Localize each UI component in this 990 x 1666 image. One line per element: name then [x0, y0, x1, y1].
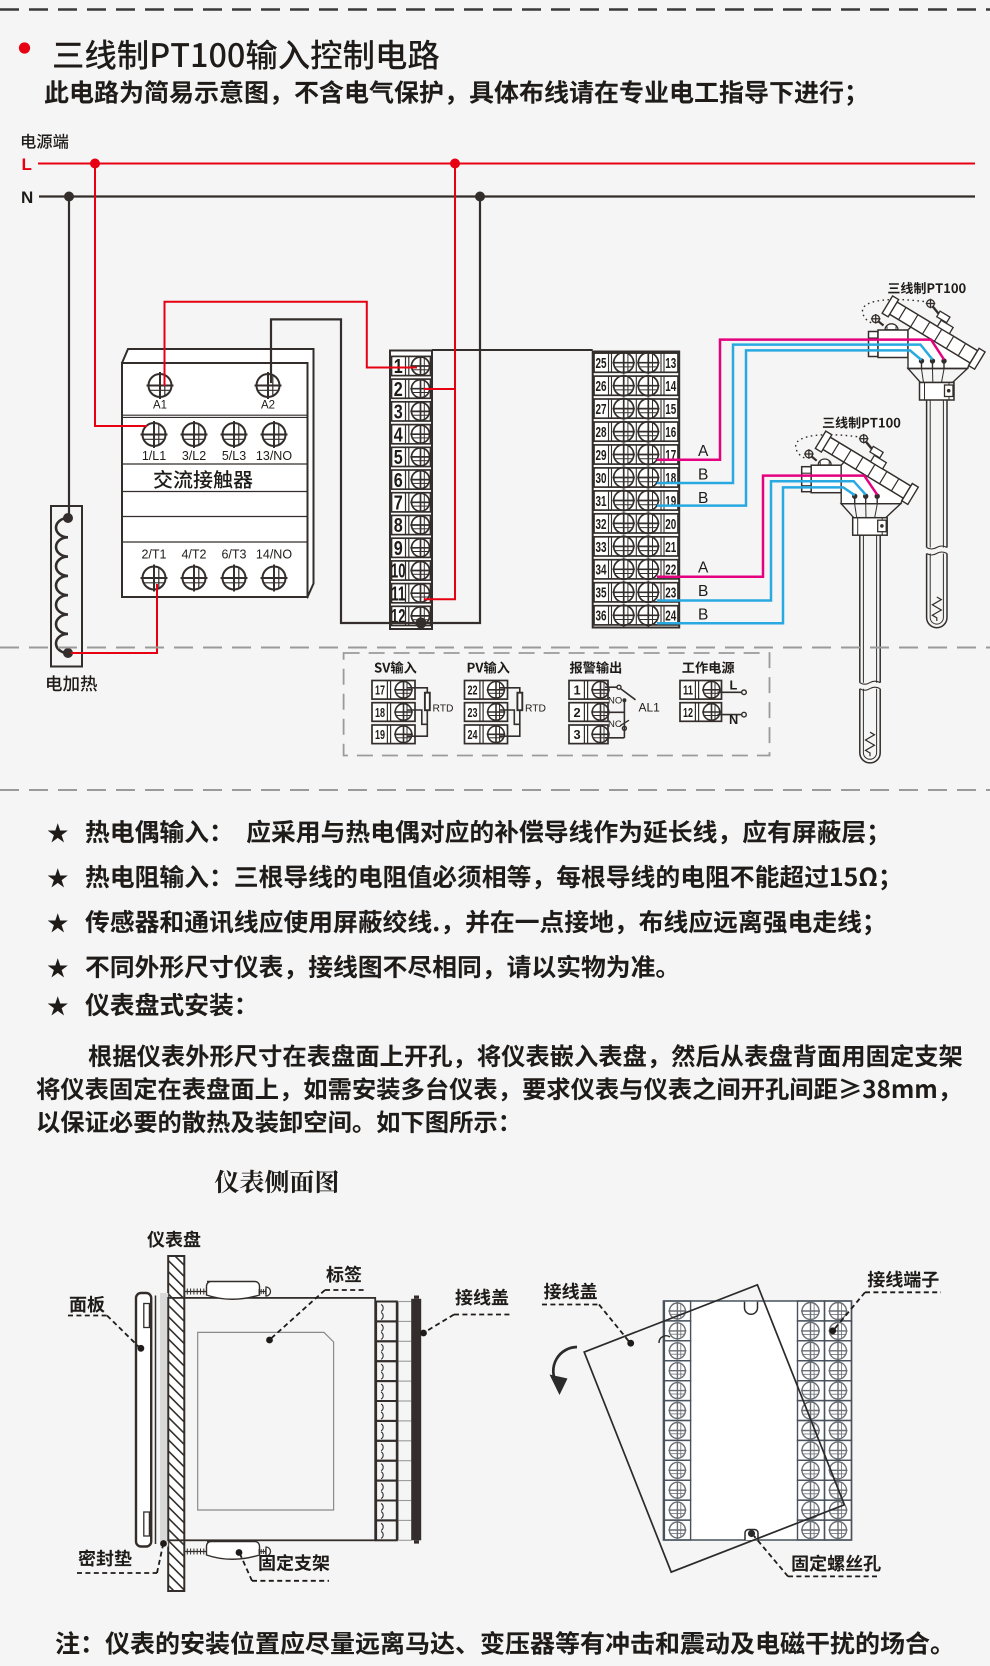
- svg-text:N: N: [21, 188, 33, 207]
- svg-text:14/NO: 14/NO: [256, 548, 292, 562]
- svg-text:L: L: [730, 678, 738, 693]
- svg-text:20: 20: [665, 517, 676, 533]
- svg-text:NC: NC: [608, 719, 622, 730]
- svg-text:2/T1: 2/T1: [141, 548, 166, 562]
- svg-text:8: 8: [394, 514, 403, 537]
- svg-text:AL1: AL1: [639, 701, 661, 715]
- svg-text:RTD: RTD: [433, 704, 454, 715]
- svg-text:B: B: [698, 583, 708, 600]
- svg-text:22: 22: [468, 683, 478, 698]
- svg-text:30: 30: [596, 471, 607, 487]
- svg-text:25: 25: [596, 356, 607, 372]
- svg-text:15: 15: [665, 402, 676, 418]
- svg-text:32: 32: [596, 517, 607, 533]
- svg-text:A: A: [698, 443, 709, 460]
- svg-text:21: 21: [665, 540, 676, 556]
- svg-text:N: N: [729, 712, 738, 727]
- svg-text:35: 35: [596, 586, 607, 602]
- svg-text:7: 7: [394, 492, 403, 515]
- svg-text:23: 23: [468, 705, 478, 720]
- svg-text:L: L: [22, 155, 32, 174]
- svg-text:10: 10: [391, 560, 406, 583]
- svg-text:2: 2: [573, 705, 580, 720]
- svg-text:1/L1: 1/L1: [142, 449, 166, 463]
- svg-text:A1: A1: [153, 400, 167, 412]
- svg-text:2: 2: [394, 378, 403, 401]
- svg-text:5/L3: 5/L3: [222, 449, 246, 463]
- svg-text:A: A: [698, 560, 709, 577]
- svg-text:NO: NO: [608, 696, 622, 707]
- svg-text:9: 9: [394, 537, 403, 560]
- svg-text:19: 19: [375, 727, 385, 742]
- svg-text:B: B: [698, 467, 708, 484]
- svg-text:13/NO: 13/NO: [256, 449, 292, 463]
- svg-text:3: 3: [394, 401, 403, 424]
- svg-text:12: 12: [683, 705, 693, 720]
- svg-text:5: 5: [394, 446, 403, 469]
- svg-text:6/T3: 6/T3: [221, 548, 246, 562]
- svg-text:3/L2: 3/L2: [182, 449, 206, 463]
- svg-text:17: 17: [665, 448, 676, 464]
- svg-text:11: 11: [683, 683, 693, 698]
- svg-text:12: 12: [391, 605, 406, 628]
- svg-text:14: 14: [665, 379, 676, 395]
- svg-text:4: 4: [394, 423, 403, 446]
- svg-text:24: 24: [468, 727, 479, 742]
- svg-text:18: 18: [375, 705, 385, 720]
- svg-text:11: 11: [391, 582, 406, 605]
- svg-text:4/T2: 4/T2: [181, 548, 206, 562]
- svg-text:26: 26: [596, 379, 607, 395]
- svg-text:19: 19: [665, 494, 676, 510]
- svg-text:33: 33: [596, 540, 607, 556]
- svg-text:31: 31: [596, 494, 607, 510]
- svg-text:27: 27: [596, 402, 607, 418]
- svg-text:3: 3: [573, 727, 580, 742]
- svg-text:RTD: RTD: [525, 704, 546, 715]
- svg-text:6: 6: [394, 469, 403, 492]
- svg-text:34: 34: [596, 563, 607, 579]
- svg-text:17: 17: [375, 683, 385, 698]
- svg-text:36: 36: [596, 609, 607, 625]
- svg-text:A2: A2: [261, 400, 275, 412]
- svg-text:18: 18: [665, 471, 676, 487]
- svg-text:16: 16: [665, 425, 676, 441]
- svg-text:13: 13: [665, 356, 676, 372]
- svg-text:28: 28: [596, 425, 607, 441]
- svg-text:29: 29: [596, 448, 607, 464]
- svg-text:1: 1: [573, 683, 580, 698]
- svg-text:B: B: [698, 607, 708, 624]
